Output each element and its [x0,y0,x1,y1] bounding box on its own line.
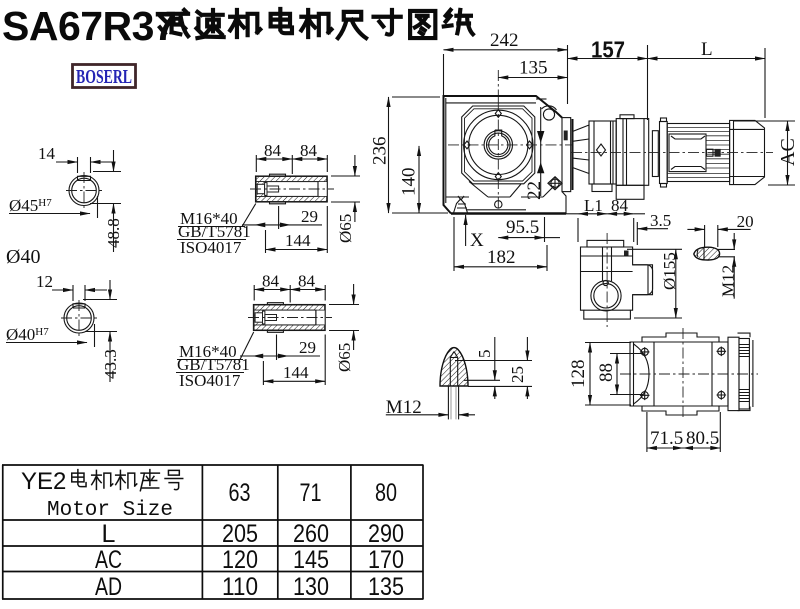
svg-text:157: 157 [591,37,625,63]
svg-text:80.5: 80.5 [686,428,719,449]
svg-text:L: L [102,520,116,548]
svg-text:BOSERL: BOSERL [76,66,132,88]
svg-text:145: 145 [293,546,329,574]
svg-text:236: 236 [370,137,391,166]
svg-text:20: 20 [737,212,754,231]
svg-text:144: 144 [283,363,309,382]
svg-text:71: 71 [300,479,322,507]
svg-text:29: 29 [299,338,316,357]
svg-text:84: 84 [262,272,280,291]
svg-text:290: 290 [368,520,404,548]
svg-text:M12: M12 [719,265,738,297]
svg-text:3.5: 3.5 [650,211,671,230]
svg-text:29: 29 [301,207,318,226]
svg-text:71.5: 71.5 [650,428,683,449]
svg-text:14: 14 [38,144,56,163]
svg-text:80: 80 [375,479,397,507]
svg-text:128: 128 [568,360,589,389]
svg-text:84: 84 [300,141,318,160]
svg-text:YE2: YE2 [21,468,66,495]
svg-text:48.8: 48.8 [104,218,123,248]
svg-text:110: 110 [222,573,258,601]
svg-text:130: 130 [293,573,329,601]
svg-text:84: 84 [264,141,282,160]
svg-text:AD: AD [95,573,122,601]
svg-text:X: X [470,230,484,251]
svg-text:170: 170 [368,546,404,574]
svg-text:22: 22 [524,181,545,200]
svg-text:88: 88 [596,363,617,382]
svg-text:84: 84 [298,272,316,291]
svg-text:95.5: 95.5 [506,217,539,238]
svg-text:ISO4017: ISO4017 [179,371,241,390]
svg-text:144: 144 [285,231,311,250]
svg-text:135: 135 [519,58,548,79]
svg-text:Ø155: Ø155 [660,252,679,290]
svg-text:L1: L1 [584,196,603,215]
svg-text:5: 5 [475,350,494,359]
svg-text:AC: AC [777,138,799,166]
svg-text:260: 260 [293,520,329,548]
svg-text:ISO4017: ISO4017 [180,238,242,257]
svg-text:SA67R37: SA67R37 [2,3,176,49]
svg-text:AC: AC [95,546,122,574]
svg-text:242: 242 [490,30,519,51]
svg-text:120: 120 [222,546,258,574]
svg-text:12: 12 [36,272,53,291]
svg-text:Ø65: Ø65 [335,343,354,372]
svg-text:135: 135 [368,573,404,601]
svg-text:L: L [701,39,713,60]
svg-text:Motor Size: Motor Size [47,499,173,522]
svg-text:25: 25 [508,366,527,383]
svg-text:140: 140 [399,168,420,197]
svg-text:63: 63 [229,479,251,507]
svg-text:84: 84 [611,196,629,215]
svg-text:Ø40: Ø40 [6,246,40,268]
svg-text:182: 182 [487,247,516,268]
svg-text:43.3: 43.3 [101,349,120,379]
svg-text:205: 205 [222,520,258,548]
svg-text:Ø65: Ø65 [336,214,355,243]
